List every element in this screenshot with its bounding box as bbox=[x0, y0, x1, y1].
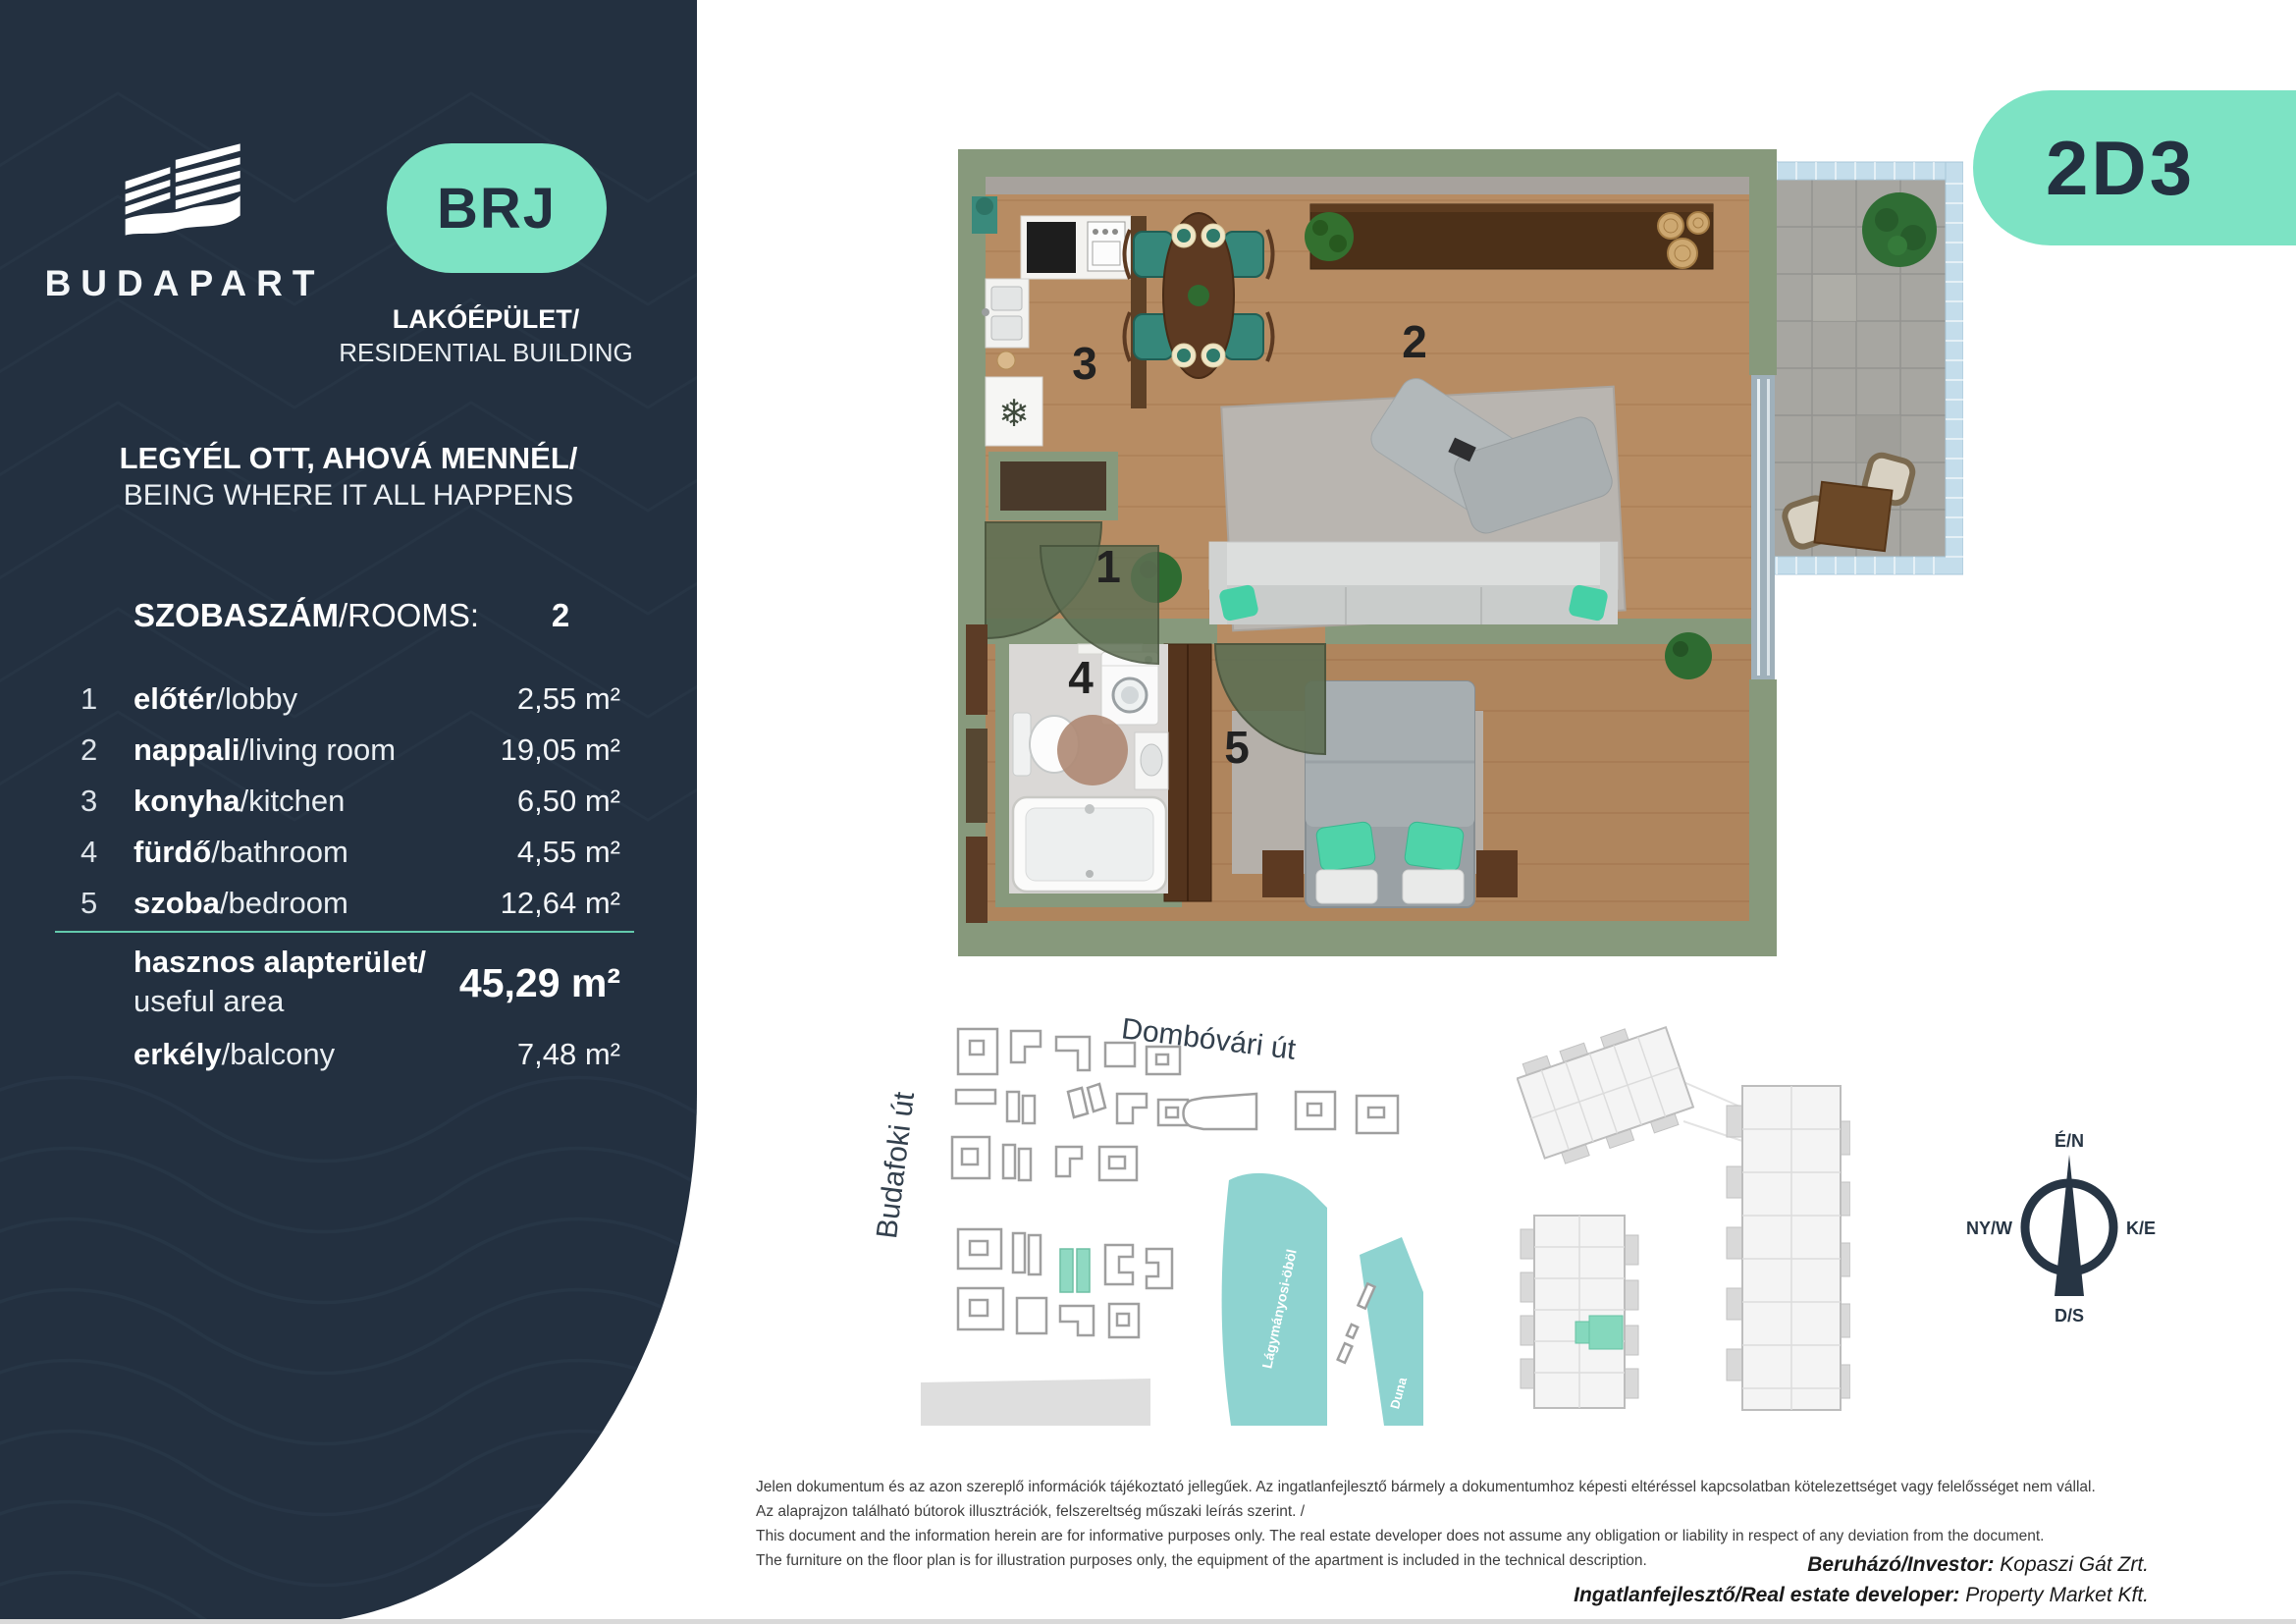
footer: Beruházó/Investor: Kopaszi Gát Zrt. Inga… bbox=[1265, 1549, 2149, 1610]
wing-left bbox=[1521, 1216, 1638, 1408]
wing-right bbox=[1727, 1086, 1850, 1410]
building-plan bbox=[1517, 1023, 1850, 1424]
balcony-row: erkély/balcony 7,48 m² bbox=[0, 1029, 697, 1080]
map-gray-area bbox=[921, 1379, 1150, 1426]
highlighted-unit bbox=[1589, 1316, 1623, 1349]
room-area: 19,05 m² bbox=[501, 725, 620, 776]
floor-plan: ❄ bbox=[933, 110, 1963, 984]
balcony bbox=[1762, 162, 1963, 574]
developer-value: Property Market Kft. bbox=[1959, 1584, 2149, 1606]
compass-west: NY/W bbox=[1966, 1218, 2012, 1238]
total-area: 45,29 m² bbox=[459, 960, 620, 1006]
balcony-label-en: /balcony bbox=[222, 1037, 335, 1071]
room-row-kitchen: 3 konyha/kitchen 6,50 m² bbox=[0, 776, 697, 827]
room-name-en: /living room bbox=[240, 732, 397, 767]
room-name-en: /lobby bbox=[216, 681, 297, 716]
building-type: LAKÓÉPÜLET/ RESIDENTIAL BUILDING bbox=[324, 302, 648, 369]
sofa bbox=[1209, 542, 1618, 589]
room-number: 2 bbox=[80, 725, 97, 776]
footer-investor: Beruházó/Investor: Kopaszi Gát Zrt. bbox=[1265, 1549, 2149, 1580]
bath-rug bbox=[1057, 715, 1128, 785]
room-label-bedroom: 5 bbox=[1224, 722, 1250, 773]
room-name-hu: előtér bbox=[133, 681, 216, 716]
compass-north: É/N bbox=[2055, 1130, 2084, 1151]
room-area: 2,55 m² bbox=[517, 674, 620, 725]
room-row-bathroom: 4 fürdő/bathroom 4,55 m² bbox=[0, 827, 697, 878]
compass-icon: É/N NY/W K/E D/S bbox=[1963, 1129, 2169, 1326]
balcony-door bbox=[1751, 375, 1775, 679]
developer-label: Ingatlanfejlesztő/Real estate developer: bbox=[1574, 1584, 1959, 1606]
rooms-header-en: /ROOMS: bbox=[339, 597, 479, 633]
room-name-hu: nappali bbox=[133, 732, 240, 767]
room-label-bath: 4 bbox=[1068, 652, 1094, 703]
wing-top bbox=[1517, 1023, 1697, 1169]
balcony-label-hu: erkély bbox=[133, 1037, 222, 1071]
room-number: 5 bbox=[80, 878, 97, 929]
total-label-en: useful area bbox=[133, 984, 284, 1019]
room-number: 3 bbox=[80, 776, 97, 827]
total-label-hu: hasznos alapterület/ bbox=[133, 945, 426, 980]
tagline: LEGYÉL OTT, AHOVÁ MENNÉL/ BEING WHERE IT… bbox=[0, 440, 697, 514]
room-name-en: /bathroom bbox=[211, 835, 348, 869]
disclaimer-line: Az alaprajzon található bútorok illusztr… bbox=[756, 1499, 2287, 1524]
room-row-lobby: 1 előtér/lobby 2,55 m² bbox=[0, 674, 697, 725]
tagline-hu: LEGYÉL OTT, AHOVÁ MENNÉL/ bbox=[0, 440, 697, 477]
room-name-hu: konyha bbox=[133, 784, 240, 818]
page: BUDAPART BRJ LAKÓÉPÜLET/ RESIDENTIAL BUI… bbox=[0, 0, 2296, 1624]
room-number: 1 bbox=[80, 674, 97, 725]
rooms-header-hu: SZOBASZÁM bbox=[133, 597, 339, 633]
map-buildings bbox=[952, 1029, 1398, 1363]
investor-value: Kopaszi Gát Zrt. bbox=[1994, 1553, 2149, 1576]
balcony-area: 7,48 m² bbox=[517, 1029, 620, 1080]
room-number: 4 bbox=[80, 827, 97, 878]
building-badge: BRJ bbox=[387, 143, 607, 273]
room-label-lobby: 1 bbox=[1095, 541, 1121, 592]
cooktop bbox=[1027, 222, 1076, 273]
unit-badge: 2D3 bbox=[1973, 90, 2296, 245]
nightstand bbox=[1476, 850, 1518, 897]
site-map: Dombóvári út Budafoki út Lágymányosi-öbö… bbox=[864, 998, 1423, 1426]
room-label-living: 2 bbox=[1402, 316, 1427, 367]
divider bbox=[55, 931, 634, 933]
room-name-hu: fürdő bbox=[133, 835, 211, 869]
rooms-header: SZOBASZÁM/ROOMS: bbox=[133, 597, 479, 634]
hall-closet bbox=[1000, 461, 1106, 511]
footer-developer: Ingatlanfejlesztő/Real estate developer:… bbox=[1265, 1580, 2149, 1610]
tagline-en: BEING WHERE IT ALL HAPPENS bbox=[0, 477, 697, 514]
room-name-en: /bedroom bbox=[220, 886, 348, 920]
rooms-count: 2 bbox=[538, 597, 583, 634]
room-area: 12,64 m² bbox=[501, 878, 620, 929]
room-area: 6,50 m² bbox=[517, 776, 620, 827]
sidebar: BUDAPART BRJ LAKÓÉPÜLET/ RESIDENTIAL BUI… bbox=[0, 0, 697, 1624]
room-name-hu: szoba bbox=[133, 886, 220, 920]
highlighted-building bbox=[1060, 1249, 1090, 1292]
page-bottom-edge bbox=[0, 1619, 2296, 1624]
room-name-en: /kitchen bbox=[240, 784, 346, 818]
tv-sideboard bbox=[1310, 204, 1713, 269]
disclaimer-line: This document and the information herein… bbox=[756, 1524, 2287, 1548]
street-label-left: Budafoki út bbox=[871, 1090, 921, 1241]
building-type-en: RESIDENTIAL BUILDING bbox=[324, 336, 648, 369]
investor-label: Beruházó/Investor: bbox=[1807, 1553, 1994, 1576]
room-row-living: 2 nappali/living room 19,05 m² bbox=[0, 725, 697, 776]
nightstand bbox=[1262, 850, 1304, 897]
toilet bbox=[1013, 713, 1031, 776]
disclaimer-line: Jelen dokumentum és az azon szereplő inf… bbox=[756, 1475, 2287, 1499]
room-label-kitchen: 3 bbox=[1072, 338, 1097, 389]
room-area: 4,55 m² bbox=[517, 827, 620, 878]
building-type-hu: LAKÓÉPÜLET/ bbox=[324, 302, 648, 336]
room-row-bedroom: 5 szoba/bedroom 12,64 m² bbox=[0, 878, 697, 929]
snowflake-icon: ❄ bbox=[998, 394, 1030, 435]
compass-needle bbox=[2055, 1155, 2084, 1296]
budapart-logo-icon bbox=[122, 135, 247, 244]
compass-east: K/E bbox=[2126, 1218, 2156, 1238]
compass-south: D/S bbox=[2055, 1306, 2084, 1326]
balcony-plant bbox=[1862, 192, 1937, 267]
budapart-wordmark: BUDAPART bbox=[0, 263, 369, 304]
